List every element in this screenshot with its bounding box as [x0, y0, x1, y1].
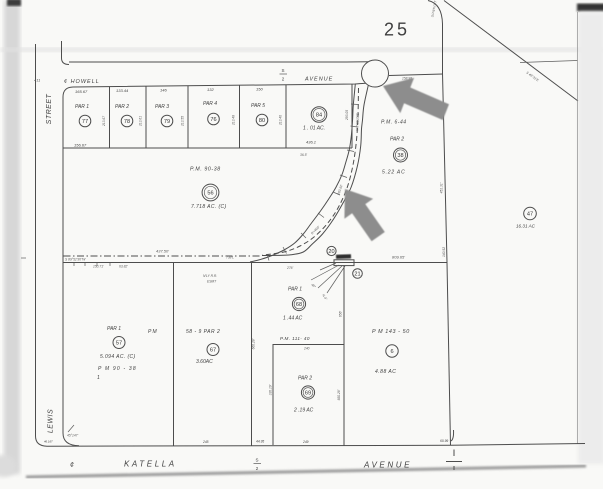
- svg-text:1 .44 AC: 1 .44 AC: [283, 316, 303, 322]
- svg-text:245: 245: [202, 440, 209, 444]
- svg-text:150: 150: [256, 87, 263, 92]
- svg-text:S 89°52'30"W: S 89°52'30"W: [65, 258, 86, 262]
- svg-text:AVENUE: AVENUE: [363, 461, 412, 470]
- svg-text:2 .19 AC: 2 .19 AC: [293, 408, 314, 414]
- svg-text:293.05: 293.05: [345, 110, 349, 121]
- svg-text:PAR 4: PAR 4: [203, 101, 217, 107]
- svg-text:N 0°31'10"E: N 0°31'10"E: [355, 112, 360, 131]
- svg-text:S: S: [281, 68, 284, 73]
- svg-text:44.95: 44.95: [256, 440, 264, 444]
- svg-text:276': 276': [286, 266, 294, 270]
- svg-text:38: 38: [397, 153, 403, 159]
- svg-text:133.44: 133.44: [116, 88, 129, 93]
- svg-text:P M: P M: [148, 329, 158, 335]
- svg-text:¢ HOWELL: ¢ HOWELL: [64, 79, 100, 85]
- svg-text:45°147': 45°147': [67, 434, 78, 438]
- svg-text:809.65': 809.65': [392, 255, 405, 260]
- svg-text:7.718 AC. (C): 7.718 AC. (C): [191, 204, 227, 210]
- svg-text:LEWIS: LEWIS: [48, 409, 55, 433]
- svg-text:3.60AC: 3.60AC: [196, 359, 213, 365]
- svg-text:21: 21: [354, 271, 360, 277]
- svg-text:16.31 AC: 16.31 AC: [516, 224, 536, 229]
- svg-text:PAR 1: PAR 1: [107, 326, 121, 332]
- svg-text:PAR 1: PAR 1: [288, 287, 302, 293]
- svg-text:156.67: 156.67: [74, 143, 87, 148]
- svg-text:660.28': 660.28': [337, 389, 341, 400]
- svg-text:P M 90 - 38: P M 90 - 38: [98, 366, 137, 372]
- svg-text:213.40: 213.40: [279, 115, 283, 126]
- svg-text:67: 67: [210, 348, 216, 354]
- svg-text:132: 132: [207, 87, 214, 92]
- svg-text:249: 249: [302, 440, 309, 444]
- svg-text:84: 84: [316, 113, 322, 119]
- svg-text:240: 240: [303, 347, 310, 351]
- svg-text:25: 25: [384, 20, 410, 40]
- svg-text:PAR 3: PAR 3: [155, 104, 169, 110]
- svg-text:213.61: 213.61: [139, 116, 143, 127]
- svg-text:76: 76: [210, 117, 216, 123]
- svg-text:AVENUE: AVENUE: [304, 77, 333, 83]
- svg-text:PAR 5: PAR 5: [251, 103, 265, 109]
- svg-text:¢: ¢: [70, 462, 74, 469]
- svg-text:N'LY R.R.: N'LY R.R.: [203, 274, 217, 278]
- svg-text:S: S: [255, 458, 258, 463]
- svg-text:5.22 AC: 5.22 AC: [382, 170, 405, 176]
- svg-text:63.82': 63.82': [119, 265, 128, 269]
- svg-text:58 - 9 PAR 2: 58 - 9 PAR 2: [186, 329, 220, 335]
- svg-text:165.67: 165.67: [75, 89, 88, 94]
- svg-text:213.55: 213.55: [181, 116, 185, 127]
- svg-text:PAR 2: PAR 2: [298, 376, 312, 382]
- svg-text:437.50': 437.50': [156, 249, 169, 254]
- svg-text:P.M. 111- 40: P.M. 111- 40: [280, 336, 310, 341]
- svg-text:78: 78: [124, 119, 130, 125]
- svg-text:330.19': 330.19': [269, 384, 273, 395]
- svg-text:213.48: 213.48: [232, 115, 236, 126]
- svg-text:P.M. 6-44: P.M. 6-44: [381, 120, 407, 126]
- svg-text:PAR 1: PAR 1: [75, 104, 89, 110]
- svg-text:77: 77: [82, 119, 88, 125]
- svg-text:ESMT: ESMT: [207, 280, 217, 284]
- svg-text:4.88 AC: 4.88 AC: [375, 369, 396, 375]
- svg-text:146: 146: [160, 88, 167, 93]
- svg-text:60.99: 60.99: [440, 439, 448, 443]
- svg-text:36.5': 36.5': [300, 153, 307, 157]
- svg-text:KATELLA: KATELLA: [124, 460, 177, 469]
- svg-text:57: 57: [116, 341, 122, 347]
- svg-text:P M 143 - 50: P M 143 - 50: [372, 329, 410, 335]
- svg-text:436.1: 436.1: [306, 140, 316, 145]
- svg-text:PAR 2: PAR 2: [390, 137, 404, 143]
- svg-text:80: 80: [259, 118, 265, 124]
- svg-text:1: 1: [97, 375, 100, 381]
- svg-text:5.094 AC. (C): 5.094 AC. (C): [100, 354, 136, 360]
- svg-text:213.67: 213.67: [102, 116, 106, 127]
- svg-text:69: 69: [305, 391, 311, 397]
- svg-text:451.31': 451.31': [440, 182, 444, 193]
- svg-text:STREET: STREET: [46, 93, 53, 124]
- svg-text:56: 56: [207, 191, 213, 197]
- svg-text:PAR 2: PAR 2: [115, 104, 129, 110]
- svg-text:738'L: 738'L: [226, 256, 234, 260]
- svg-text:660.28': 660.28': [252, 338, 256, 349]
- svg-text:68: 68: [296, 302, 302, 308]
- svg-text:20: 20: [328, 249, 334, 255]
- svg-text:1 . 01 AC.: 1 . 01 AC.: [303, 126, 325, 132]
- svg-text:411: 411: [34, 78, 40, 83]
- svg-text:47: 47: [527, 212, 533, 218]
- svg-text:656': 656': [339, 311, 343, 318]
- svg-text:79: 79: [164, 119, 170, 125]
- svg-text:46.167: 46.167: [44, 440, 53, 444]
- svg-text:P.M. 90-38: P.M. 90-38: [190, 167, 221, 173]
- svg-text:6: 6: [390, 349, 393, 355]
- svg-text:150.71': 150.71': [93, 265, 104, 269]
- svg-text:140.52: 140.52: [442, 247, 446, 257]
